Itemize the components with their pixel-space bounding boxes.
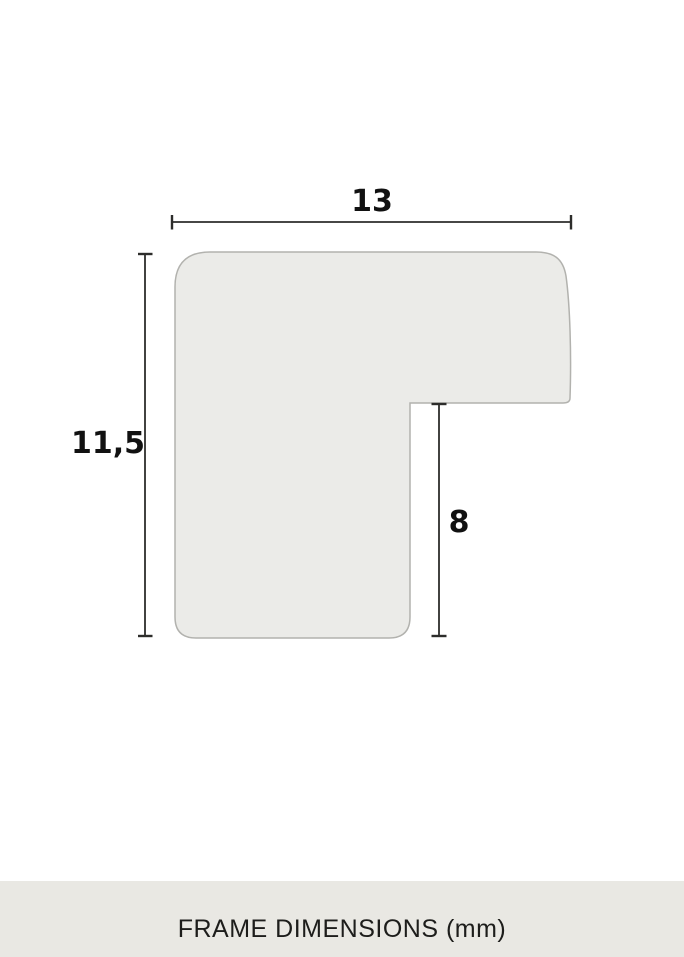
rabbet-depth-dimension-label: 8: [449, 505, 470, 540]
footer-band: FRAME DIMENSIONS (mm): [0, 881, 684, 957]
footer-title: FRAME DIMENSIONS (mm): [178, 915, 507, 944]
frame-profile-shape: [175, 252, 571, 638]
frame-dimensions-page: 13 11,5 8 FRAME DIMENSIONS (mm): [0, 0, 684, 957]
frame-profile-diagram: 13 11,5 8: [0, 0, 684, 882]
height-dimension-label: 11,5: [71, 426, 145, 461]
width-dimension-label: 13: [351, 184, 393, 219]
rabbet-depth-dimension-line: [432, 404, 447, 636]
